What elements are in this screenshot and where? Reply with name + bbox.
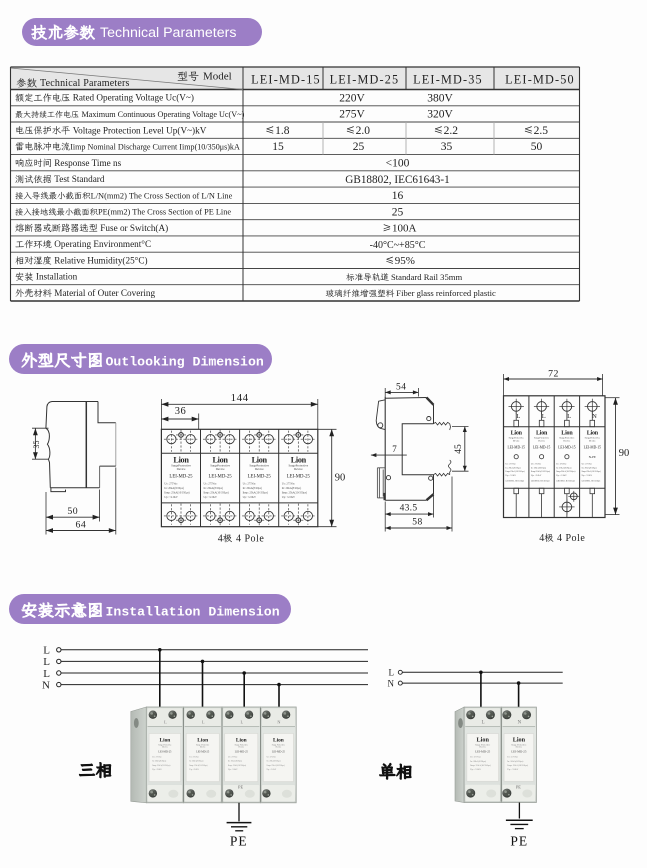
svg-text:-40°C~+85°C: -40°C~+85°C	[370, 240, 426, 251]
svg-text:LEI-MD-25: LEI-MD-25	[209, 475, 233, 480]
svg-text:<100: <100	[386, 158, 410, 170]
svg-text:Iimp: 25kA(10/350μs): Iimp: 25kA(10/350μs)	[282, 491, 307, 494]
svg-text:LEI-MD-25: LEI-MD-25	[169, 475, 193, 480]
svg-text:In: 20kA(8/20μs): In: 20kA(8/20μs)	[507, 760, 523, 763]
svg-text:50: 50	[531, 141, 543, 153]
svg-text:L: L	[567, 413, 571, 420]
svg-text:Up: <2.0kV: Up: <2.0kV	[152, 768, 162, 771]
svg-text:LEI-MD-25: LEI-MD-25	[235, 750, 249, 753]
svg-text:Up: <2.0kV: Up: <2.0kV	[582, 474, 593, 477]
svg-text:L: L	[43, 668, 50, 680]
svg-text:PE: PE	[230, 834, 248, 849]
svg-text:275V: 275V	[339, 109, 365, 121]
svg-text:Uc: 275Vac: Uc: 275Vac	[582, 464, 592, 466]
svg-text:GB18802, IEC61643: GB18802, IEC61643	[582, 481, 602, 483]
svg-text:LEI-MD-25: LEI-MD-25	[287, 475, 311, 480]
svg-text:Device: Device	[294, 467, 303, 471]
svg-text:Iimp: 25kA(10/350μs): Iimp: 25kA(10/350μs)	[204, 491, 229, 494]
svg-text:2.2: 2.2	[444, 125, 459, 137]
svg-text:L: L	[240, 720, 243, 725]
svg-text:Uc: 275Vac: Uc: 275Vac	[556, 464, 566, 466]
svg-text:Uc: 275Vac: Uc: 275Vac	[204, 482, 218, 485]
svg-text:Uc: 275Vac: Uc: 275Vac	[506, 464, 516, 466]
svg-text:PE: PE	[238, 785, 243, 790]
svg-text:50: 50	[67, 506, 78, 517]
svg-text:Lion: Lion	[236, 738, 247, 744]
svg-text:Technical Parameters: Technical Parameters	[100, 25, 236, 41]
svg-text:1.8: 1.8	[275, 125, 290, 137]
svg-text:Up: <2.0kV: Up: <2.0kV	[243, 496, 256, 499]
svg-text:Up: <2.0kV: Up: <2.0kV	[506, 474, 517, 477]
svg-text:LEI-MD-15: LEI-MD-15	[558, 446, 576, 450]
svg-text:4: 4	[218, 533, 223, 544]
svg-text:L: L	[164, 720, 167, 725]
svg-text:LEI-MD-15: LEI-MD-15	[508, 446, 526, 450]
svg-text:54: 54	[396, 383, 407, 393]
svg-text:Lion: Lion	[513, 737, 526, 744]
svg-text:Operating Environment°C: Operating Environment°C	[54, 239, 151, 249]
svg-text:N: N	[42, 679, 50, 691]
svg-text:LEI-MD-25: LEI-MD-25	[196, 750, 210, 753]
svg-text:LEI-MD-25: LEI-MD-25	[475, 749, 490, 753]
svg-text:Installation Dimension: Installation Dimension	[106, 605, 280, 620]
svg-text:Material of Outer Covering: Material of Outer Covering	[54, 288, 155, 298]
svg-text:Iimp:25kA(10/350μs): Iimp:25kA(10/350μs)	[531, 470, 550, 473]
svg-text:Iimp:25kA(10/350μs): Iimp:25kA(10/350μs)	[582, 470, 601, 473]
svg-text:GB18802, IEC61643: GB18802, IEC61643	[556, 481, 576, 483]
svg-text:25: 25	[392, 206, 404, 218]
svg-text:Up: <2.0kV: Up: <2.0kV	[282, 496, 295, 499]
svg-text:Device: Device	[538, 439, 545, 442]
svg-text:In: 20kA(8/20μs): In: 20kA(8/20μs)	[531, 466, 546, 469]
svg-text:4 Pole: 4 Pole	[557, 533, 585, 544]
svg-text:4 Pole: 4 Pole	[236, 533, 264, 544]
svg-text:35: 35	[32, 441, 41, 449]
svg-text:Device: Device	[564, 439, 571, 442]
svg-text:36: 36	[175, 406, 187, 417]
svg-text:Up: <2.0kV: Up: <2.0kV	[267, 768, 277, 771]
svg-text:2.0: 2.0	[356, 125, 371, 137]
svg-text:In: 20kA(8/20μs): In: 20kA(8/20μs)	[267, 760, 281, 763]
svg-text:Iimp: 25kA(10/350μs): Iimp: 25kA(10/350μs)	[470, 764, 491, 767]
svg-text:Up: <2.0kV: Up: <2.0kV	[228, 768, 238, 771]
svg-text:N: N	[518, 721, 522, 726]
svg-text:Device: Device	[216, 467, 225, 471]
svg-text:LEI-MD-50: LEI-MD-50	[505, 73, 575, 87]
svg-text:In: 20kA(8/20μs): In: 20kA(8/20μs)	[506, 466, 521, 469]
svg-text:Iimp: 25kA(10/350μs): Iimp: 25kA(10/350μs)	[152, 764, 170, 767]
svg-text:380V: 380V	[427, 92, 453, 104]
svg-text:Iimp:25kA(10/350μs): Iimp:25kA(10/350μs)	[556, 470, 575, 473]
svg-text:Relative Humidity(25°C): Relative Humidity(25°C)	[54, 255, 147, 265]
svg-text:72: 72	[548, 368, 559, 379]
svg-text:45: 45	[454, 444, 464, 454]
svg-text:LEI-MD-25: LEI-MD-25	[248, 475, 272, 480]
svg-text:Uc: 275Vac: Uc: 275Vac	[164, 482, 178, 485]
svg-text:58: 58	[412, 518, 423, 528]
svg-text:Fiber glass reinforced plastic: Fiber glass reinforced plastic	[396, 288, 496, 298]
svg-text:4: 4	[539, 533, 544, 544]
svg-text:LEI-MD-25: LEI-MD-25	[158, 750, 172, 753]
svg-text:In: 20kA(8/20μs): In: 20kA(8/20μs)	[164, 487, 184, 490]
svg-text:100A: 100A	[392, 223, 417, 235]
svg-text:In: 20kA(8/20μs): In: 20kA(8/20μs)	[152, 760, 166, 763]
svg-text:7: 7	[392, 444, 397, 454]
svg-text:Maximum Continuous Operating V: Maximum Continuous Operating Voltage Uc(…	[82, 110, 245, 119]
svg-text:144: 144	[231, 392, 249, 404]
svg-text:Iimp: 25kA(10/350μs): Iimp: 25kA(10/350μs)	[189, 764, 207, 767]
svg-text:Up: <2.0kV: Up: <2.0kV	[507, 768, 518, 771]
svg-text:LEI-MD-25: LEI-MD-25	[511, 749, 526, 753]
svg-text:In: 20kA(8/20μs): In: 20kA(8/20μs)	[204, 487, 224, 490]
svg-text:Uc: 275Vac: Uc: 275Vac	[470, 757, 481, 759]
svg-text:L: L	[542, 413, 546, 420]
svg-text:Uc: 275Vac: Uc: 275Vac	[228, 757, 237, 759]
svg-text:L: L	[43, 656, 50, 668]
svg-text:N: N	[277, 720, 280, 725]
svg-text:Response Time ns: Response Time ns	[54, 158, 121, 168]
svg-text:Uc: 275Vac: Uc: 275Vac	[189, 757, 198, 759]
svg-text:Uc: 275Vac: Uc: 275Vac	[152, 757, 161, 759]
svg-text:L: L	[389, 668, 395, 678]
svg-text:L/N(mm2) The Cross Section of: L/N(mm2) The Cross Section of L/N Line	[91, 191, 233, 200]
svg-text:Device: Device	[162, 747, 168, 749]
svg-text:Uc: 275Vac: Uc: 275Vac	[243, 482, 257, 485]
svg-text:Device: Device	[255, 467, 264, 471]
svg-text:LEI-MD-25: LEI-MD-25	[272, 750, 286, 753]
svg-text:Device: Device	[200, 747, 206, 749]
svg-text:Uc: 275Vac: Uc: 275Vac	[282, 482, 296, 485]
svg-text:Device: Device	[589, 439, 596, 442]
svg-text:Up: <2.0kV: Up: <2.0kV	[470, 768, 481, 771]
svg-text:16: 16	[392, 190, 404, 202]
svg-text:GB18802, IEC61643-1: GB18802, IEC61643-1	[345, 174, 449, 186]
svg-text:LEI-MD-15: LEI-MD-15	[533, 446, 551, 450]
svg-text:In: 20kA(8/20μs): In: 20kA(8/20μs)	[582, 466, 597, 469]
svg-text:90: 90	[619, 448, 630, 459]
svg-text:Uc: 275Vac: Uc: 275Vac	[531, 464, 541, 466]
svg-text:LEI-MD-15: LEI-MD-15	[251, 73, 321, 87]
svg-text:Iimp:25kA(10/350μs): Iimp:25kA(10/350μs)	[506, 470, 525, 473]
svg-text:Up: <2.0kV: Up: <2.0kV	[189, 768, 199, 771]
svg-text:Lion: Lion	[197, 738, 208, 744]
svg-text:In: 20kA(8/20μs): In: 20kA(8/20μs)	[556, 466, 571, 469]
svg-text:PE(mm2) The Cross Section of P: PE(mm2) The Cross Section of PE Line	[98, 208, 231, 217]
svg-text:Uc: 275Vac: Uc: 275Vac	[507, 757, 518, 759]
svg-text:L: L	[516, 413, 520, 420]
svg-text:PE: PE	[516, 785, 521, 790]
svg-text:Iimp: 25kA(10/350μs): Iimp: 25kA(10/350μs)	[243, 491, 268, 494]
svg-text:In: 20kA(8/20μs): In: 20kA(8/20μs)	[189, 760, 203, 763]
svg-text:220V: 220V	[339, 92, 365, 104]
svg-text:LEI-MD-25: LEI-MD-25	[330, 73, 400, 87]
svg-text:In: 20kA(8/20μs): In: 20kA(8/20μs)	[470, 760, 486, 763]
svg-text:15: 15	[272, 141, 284, 153]
svg-text:Outlooking Dimension: Outlooking Dimension	[106, 355, 264, 370]
svg-text:PE: PE	[510, 834, 528, 849]
svg-text:Device: Device	[177, 467, 186, 471]
svg-text:43.5: 43.5	[400, 504, 418, 514]
svg-text:Uc: 275Vac: Uc: 275Vac	[267, 757, 276, 759]
svg-text:Voltage Protection Level Up(V~: Voltage Protection Level Up(V~)kV	[73, 125, 207, 135]
svg-text:In: 20kA(8/20μs): In: 20kA(8/20μs)	[228, 760, 242, 763]
svg-text:In: 20kA(8/20μs): In: 20kA(8/20μs)	[243, 487, 263, 490]
svg-text:Iimp: 25kA(10/350μs): Iimp: 25kA(10/350μs)	[267, 764, 285, 767]
svg-text:64: 64	[76, 519, 87, 530]
svg-text:Device: Device	[479, 747, 486, 749]
svg-text:N-PE: N-PE	[589, 455, 596, 459]
svg-text:L: L	[482, 721, 485, 726]
svg-text:Fuse or Switch(A): Fuse or Switch(A)	[100, 223, 168, 233]
svg-text:Iimp Nominal Discharge Current: Iimp Nominal Discharge Current Iimp(10/3…	[70, 143, 240, 152]
svg-text:Up: <2.0kV: Up: <2.0kV	[531, 474, 542, 477]
svg-text:L: L	[43, 645, 50, 657]
svg-text:320V: 320V	[427, 109, 453, 121]
svg-text:Model: Model	[203, 71, 232, 83]
svg-text:LEI-MD-35: LEI-MD-35	[413, 73, 483, 87]
svg-text:N: N	[592, 413, 597, 420]
svg-text:GB18802, IEC61643: GB18802, IEC61643	[531, 481, 551, 483]
svg-text:Iimp: 25kA(10/350μs): Iimp: 25kA(10/350μs)	[164, 491, 189, 494]
svg-text:GB18802, IEC61643: GB18802, IEC61643	[506, 481, 526, 483]
svg-text:Lion: Lion	[476, 737, 489, 744]
svg-text:Standard Rail 35mm: Standard Rail 35mm	[391, 272, 462, 282]
svg-text:Up: <2.0kV: Up: <2.0kV	[204, 496, 217, 499]
svg-text:LEI-MD-15: LEI-MD-15	[584, 446, 602, 450]
svg-text:In: 20kA(8/20μs): In: 20kA(8/20μs)	[282, 487, 302, 490]
svg-text:Lion: Lion	[160, 738, 171, 744]
svg-text:2.5: 2.5	[534, 125, 549, 137]
svg-text:Device: Device	[238, 747, 244, 749]
svg-text:Device: Device	[276, 747, 282, 749]
svg-text:Installation: Installation	[36, 272, 78, 282]
svg-text:Up: <2.0kV: Up: <2.0kV	[164, 496, 177, 499]
svg-text:Iimp: 25kA(10/350μs): Iimp: 25kA(10/350μs)	[228, 764, 246, 767]
svg-text:Up: <2.0kV: Up: <2.0kV	[556, 474, 567, 477]
svg-text:Technical Parameters: Technical Parameters	[40, 78, 130, 89]
svg-text:25: 25	[353, 141, 365, 153]
svg-text:L: L	[202, 720, 205, 725]
svg-text:N: N	[388, 678, 395, 688]
svg-text:Rated Operating Voltage Uc(V~): Rated Operating Voltage Uc(V~)	[73, 93, 194, 103]
svg-text:Device: Device	[516, 747, 523, 749]
svg-text:Device: Device	[513, 439, 520, 442]
svg-text:Iimp: 25kA(10/350μs): Iimp: 25kA(10/350μs)	[507, 764, 528, 767]
svg-text:90: 90	[335, 473, 346, 484]
svg-text:Lion: Lion	[273, 738, 284, 744]
svg-text:Test Standard: Test Standard	[54, 174, 105, 184]
svg-text:95%: 95%	[395, 255, 415, 267]
svg-text:35: 35	[441, 141, 453, 153]
